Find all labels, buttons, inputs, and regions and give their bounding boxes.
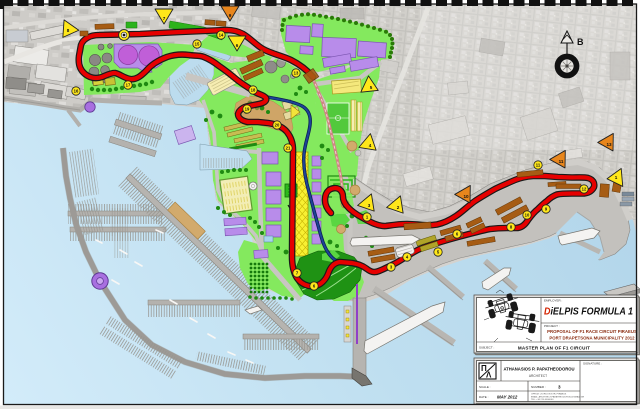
svg-text:EMAIL: ARCHITECT.PAPATHEODOROU: EMAIL: ARCHITECT.PAPATHEODOROU@GMAIL.GR: [531, 395, 584, 398]
svg-text:3: 3: [368, 203, 371, 208]
svg-text:2: 2: [397, 205, 400, 210]
svg-text:9: 9: [229, 13, 232, 18]
svg-text:PROPOSAL OF F1 RACE CIRCUIT PI: PROPOSAL OF F1 RACE CIRCUIT PIRAEUS: [547, 329, 637, 334]
svg-text:MASTER PLAN OF F1 CIRCUIT: MASTER PLAN OF F1 CIRCUIT: [518, 345, 590, 350]
svg-text:14: 14: [219, 33, 224, 38]
svg-text:16: 16: [74, 89, 79, 94]
svg-text:18: 18: [251, 88, 256, 93]
svg-text:SUBJECT :: SUBJECT :: [479, 346, 494, 350]
svg-text:DATE :: DATE :: [479, 395, 489, 399]
svg-text:1: 1: [615, 175, 618, 180]
svg-text:MAY 2012: MAY 2012: [497, 395, 518, 400]
svg-text:12: 12: [582, 187, 587, 192]
svg-text:DiELPIS FORMULA 1: DiELPIS FORMULA 1: [544, 307, 633, 318]
svg-text:EMPLOYER :: EMPLOYER :: [544, 299, 563, 303]
svg-text:20: 20: [275, 123, 280, 128]
svg-text:10: 10: [525, 213, 530, 218]
svg-text:5: 5: [370, 85, 373, 90]
svg-text:SIGNATURE :: SIGNATURE :: [583, 362, 602, 366]
svg-text:21: 21: [286, 146, 291, 151]
svg-text:6: 6: [236, 43, 239, 48]
svg-text:11: 11: [536, 163, 541, 168]
svg-text:PROJECT :: PROJECT :: [544, 324, 560, 328]
svg-text:13: 13: [606, 142, 612, 147]
svg-text:TEL: +30 210 4000000: TEL: +30 210 4000000: [531, 399, 554, 401]
svg-text:17: 17: [126, 83, 131, 88]
svg-text:15: 15: [195, 42, 200, 47]
svg-text:B: B: [577, 37, 584, 47]
svg-text:19: 19: [245, 107, 250, 112]
svg-text:13: 13: [294, 71, 299, 76]
svg-text:ATHANASIOS P. PAPATHEODOROU: ATHANASIOS P. PAPATHEODOROU: [503, 367, 574, 372]
svg-text:NUMBER :: NUMBER :: [531, 385, 546, 389]
svg-text:OFFICE: 25 IROON STR. PIRAEUS: OFFICE: 25 IROON STR. PIRAEUS: [531, 393, 567, 396]
svg-text:4: 4: [369, 143, 372, 148]
svg-text:10: 10: [463, 194, 469, 199]
svg-text:3: 3: [558, 385, 561, 390]
svg-text:SCALE :: SCALE :: [479, 385, 491, 389]
svg-text:PORT DRAPETSONA MUNICIPALITY 2: PORT DRAPETSONA MUNICIPALITY 2012: [549, 336, 635, 341]
svg-text:7: 7: [163, 16, 166, 21]
svg-text:11: 11: [559, 159, 564, 164]
svg-text:8: 8: [67, 28, 70, 33]
svg-text:ARCHITECT: ARCHITECT: [529, 374, 547, 378]
